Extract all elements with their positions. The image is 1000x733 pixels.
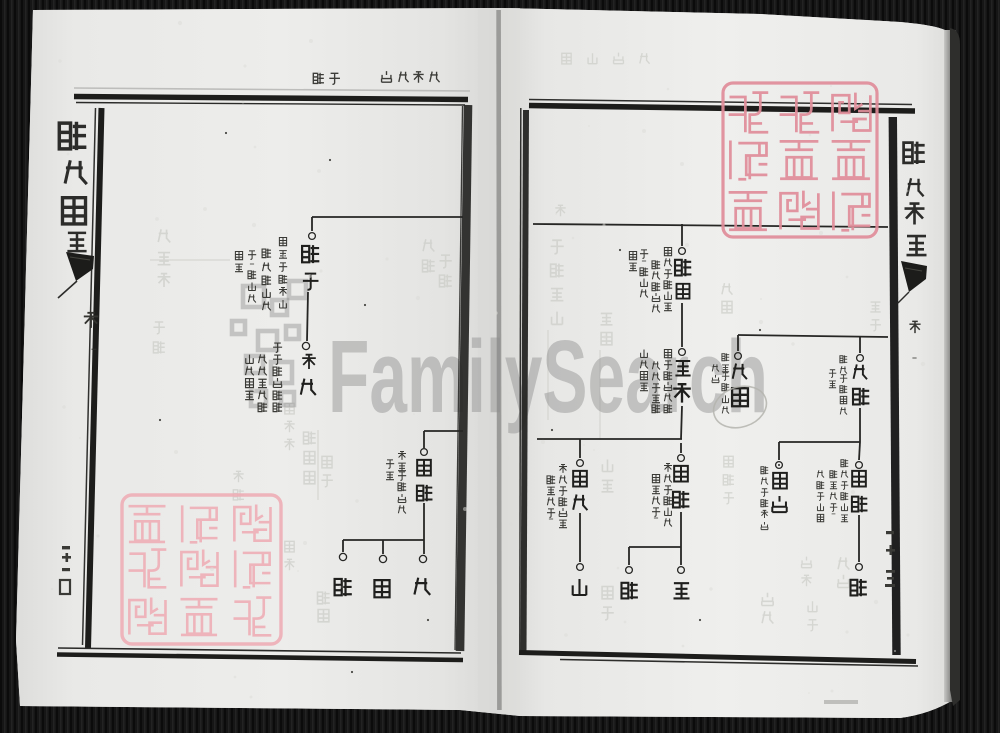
svg-text:FamilySearch: FamilySearch <box>328 319 768 434</box>
